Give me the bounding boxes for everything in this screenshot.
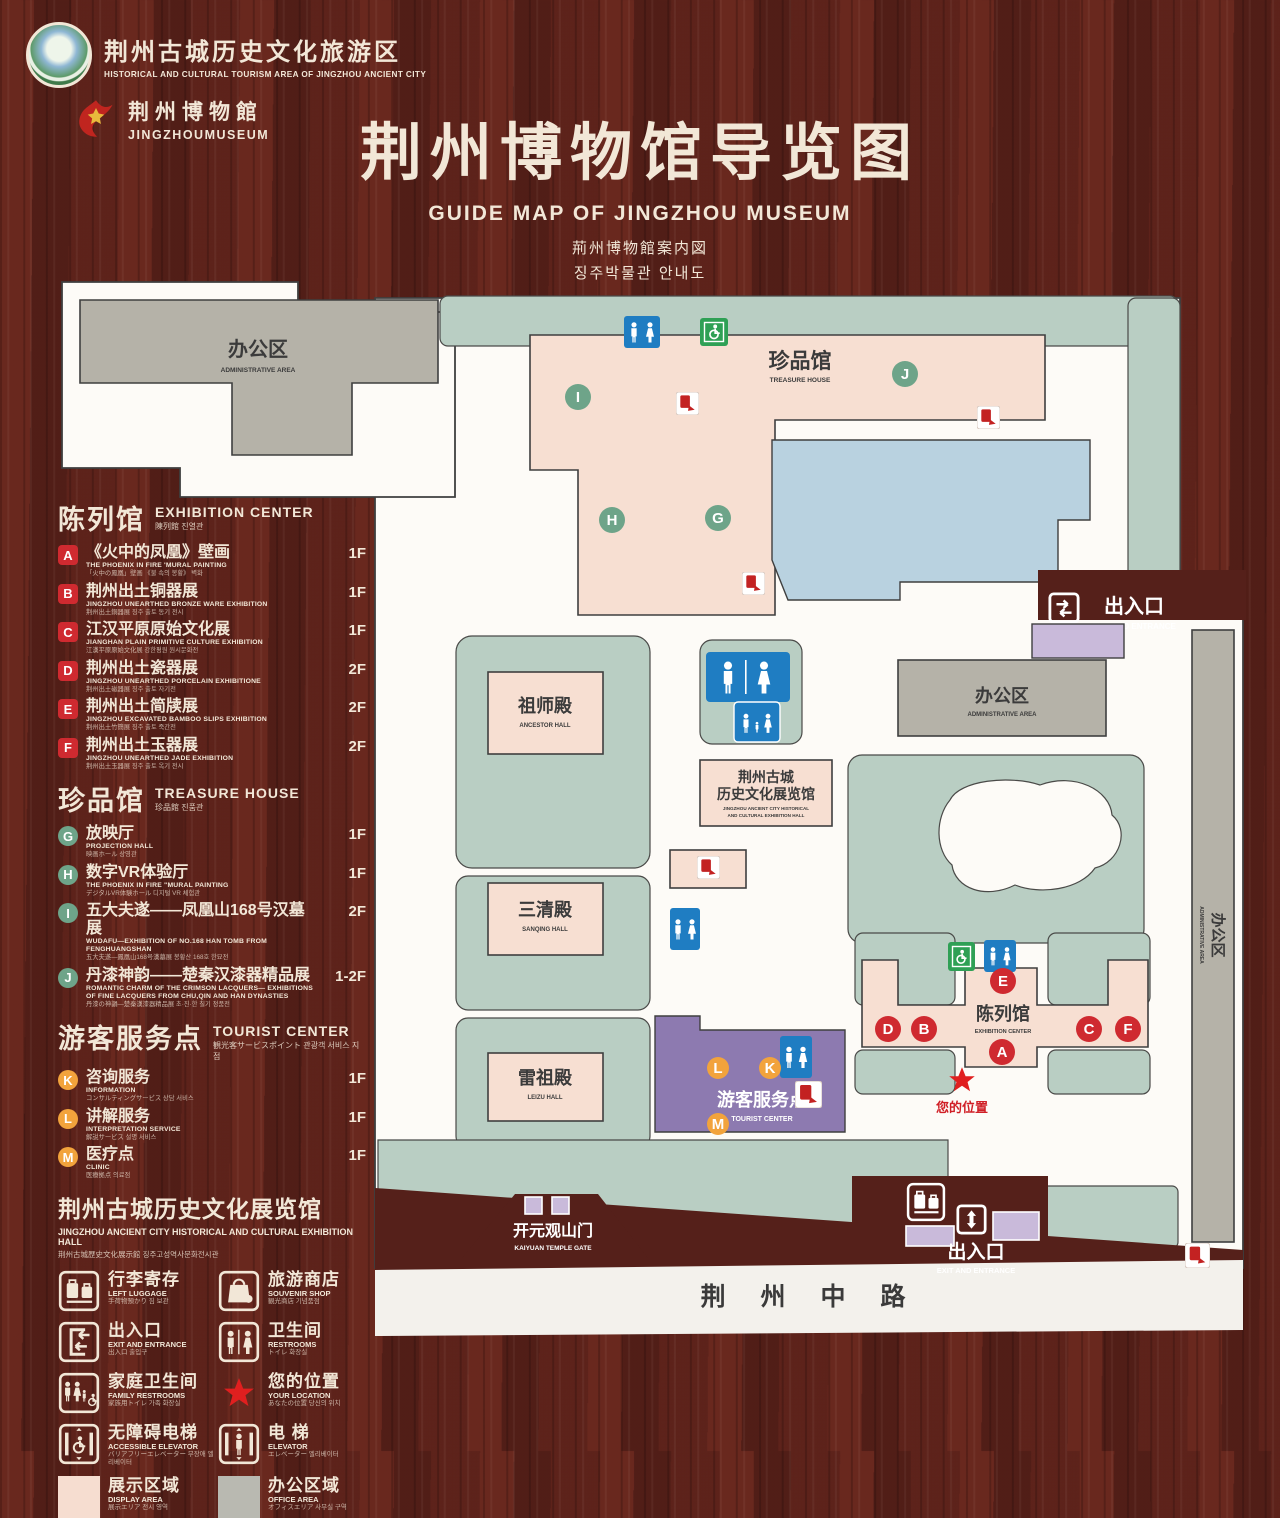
floor-label: 2F: [348, 903, 366, 920]
svg-text:JINGZHOU ANCIENT CITY HISTORIC: JINGZHOU ANCIENT CITY HISTORICAL: [723, 806, 809, 811]
admin-area-side-label: 办公区: [1209, 912, 1227, 957]
list-item: J 丹漆神韵——楚秦汉漆器精品展ROMANTIC CHARM OF THE CR…: [58, 967, 366, 1009]
floor-label: 1-2F: [335, 968, 366, 985]
svg-text:G: G: [712, 510, 724, 527]
section-treasure-house: 珍品馆 TREASURE HOUSE 珍品館 진품관 G 放映厅PROJECTI…: [58, 779, 366, 1008]
item-letter-badge: B: [58, 584, 78, 604]
legend-item-elevator: 电 梯ELEVATORエレベーター 엘리베이터: [218, 1423, 366, 1467]
elevator-icon: [218, 1423, 260, 1465]
leizu-hall: 雷祖殿 LEIZU HALL: [488, 1053, 603, 1121]
svg-text:EXHIBITION CENTER: EXHIBITION CENTER: [975, 1029, 1032, 1035]
your-location-star-icon: [218, 1372, 260, 1414]
admin-area-right-label: 办公区: [975, 685, 1029, 706]
legend-item-exit: 出入口EXIT AND ENTRANCE出入口 출입구: [58, 1321, 218, 1363]
svg-text:ADMINISTRATIVE AREA: ADMINISTRATIVE AREA: [1198, 906, 1204, 964]
svg-text:K: K: [765, 1060, 776, 1077]
list-item: E 荆州出土简牍展JINGZHOU EXCAVATED BAMBOO SLIPS…: [58, 698, 366, 732]
svg-text:游客服务点: 游客服务点: [717, 1089, 807, 1110]
lawn-exh-se: [1048, 1050, 1150, 1094]
svg-text:LEIZU HALL: LEIZU HALL: [528, 1095, 563, 1101]
svg-text:三清殿: 三清殿: [518, 900, 573, 920]
list-item: G 放映厅PROJECTION HALL映画ホール 상영관 1F: [58, 825, 366, 859]
svg-text:陈列馆: 陈列馆: [976, 1003, 1030, 1024]
svg-text:ANCESTOR HALL: ANCESTOR HALL: [519, 723, 571, 729]
section-tourist-center: 游客服务点 TOURIST CENTER 観光客サービスポイント 관광객 서비스…: [58, 1017, 366, 1180]
section-title: 珍品馆: [58, 779, 145, 818]
treasure-house-building: 珍品馆 TREASURE HOUSE: [530, 335, 1090, 615]
section-exhibition-center: 陈列馆 EXHIBITION CENTER 陳列館 진열관 A 《火中的凤凰》壁…: [58, 498, 366, 770]
svg-text:I: I: [576, 389, 580, 406]
floor-label: 1F: [348, 584, 366, 601]
svg-text:M: M: [712, 1116, 725, 1133]
lawn-right-strip: [1128, 298, 1180, 590]
souvenir-shop-icon: [218, 1270, 260, 1312]
floor-label: 1F: [348, 1147, 366, 1164]
svg-text:L: L: [713, 1060, 722, 1077]
svg-text:SANQING HALL: SANQING HALL: [522, 927, 568, 933]
svg-text:C: C: [1084, 1021, 1095, 1038]
exit-entrance-icon: [58, 1321, 100, 1363]
item-letter-badge: I: [58, 903, 78, 923]
list-item: K 咨询服务INFORMATIONコンサルティングサービス 상담 서비스 1F: [58, 1069, 366, 1103]
guide-map-poster: { "header": { "logo1": {"line1": "荆州古城历史…: [0, 0, 1280, 1451]
floor-label: 1F: [348, 826, 366, 843]
svg-text:开元观山门: 开元观山门: [513, 1221, 593, 1240]
red-marker-icon: [742, 572, 765, 595]
floor-label: 2F: [348, 699, 366, 716]
svg-text:EXIT AND ENTRANCE: EXIT AND ENTRANCE: [937, 1266, 1015, 1275]
floor-label: 2F: [348, 661, 366, 678]
restroom-icon-treasure: [624, 316, 660, 348]
red-marker-icon: [1185, 1243, 1210, 1268]
legend-sidebar: 陈列馆 EXHIBITION CENTER 陳列館 진열관 A 《火中的凤凰》壁…: [58, 498, 366, 1518]
restroom-icon-exhibition: [984, 940, 1016, 972]
accessible-elevator-icon-exhibition: [948, 942, 975, 971]
floor-label: 1F: [348, 1109, 366, 1126]
item-letter-badge: M: [58, 1147, 78, 1167]
svg-text:B: B: [919, 1021, 930, 1038]
svg-text:A: A: [997, 1044, 1008, 1061]
road-label: 荆 州 中 路: [701, 1283, 920, 1311]
item-letter-badge: K: [58, 1070, 78, 1090]
exhibition-hall-note: 荆州古城历史文化展览馆 JINGZHOU ANCIENT CITY HISTOR…: [58, 1190, 366, 1260]
legend-item-family-restrooms: 家庭卫生间FAMILY RESTROOMS家族用トイレ 가족 화장실: [58, 1372, 218, 1414]
item-letter-badge: H: [58, 865, 78, 885]
list-item: C 江汉平原原始文化展JIANGHAN PLAIN PRIMITIVE CULT…: [58, 621, 366, 655]
section-title: 游客服务点: [58, 1017, 203, 1056]
svg-text:祖师殿: 祖师殿: [517, 695, 573, 716]
svg-text:AND CULTURAL EXHIBITION HALL: AND CULTURAL EXHIBITION HALL: [728, 813, 805, 818]
red-marker-icon: [795, 1081, 822, 1108]
legend-item-restrooms: 卫生间RESTROOMSトイレ 화장실: [218, 1321, 366, 1363]
accessible-elevator-icon-treasure: [700, 318, 728, 346]
floor-label: 1F: [348, 865, 366, 882]
treasure-house-label: 珍品馆: [769, 349, 832, 373]
office-wing: 办公区 ADMINISTRATIVE AREA: [62, 282, 455, 497]
legend-grid: 行李寄存LEFT LUGGAGE手荷物預かり 짐 보관 旅游商店SOUVENIR…: [58, 1270, 366, 1518]
svg-text:荆州古城: 荆州古城: [738, 769, 794, 785]
accessible-elevator-icon: [58, 1423, 100, 1465]
floor-label: 1F: [348, 622, 366, 639]
red-marker-icon: [676, 392, 699, 415]
svg-text:TREASURE HOUSE: TREASURE HOUSE: [770, 377, 831, 384]
list-item: M 医疗点CLINIC医療拠点 의료점 1F: [58, 1146, 366, 1180]
legend-item-accessible-elevator: 无障碍电梯ACCESSIBLE ELEVATORバリアフリーエレベーター 무장애…: [58, 1423, 218, 1467]
item-letter-badge: A: [58, 545, 78, 565]
svg-text:ADMINISTRATIVE AREA: ADMINISTRATIVE AREA: [968, 712, 1038, 718]
page-title-ko: 징주박물관 안내도: [250, 262, 1030, 283]
entrance-gate-se: [993, 1212, 1039, 1240]
sanqing-hall: 三清殿 SANQING HALL: [488, 883, 603, 955]
item-letter-badge: F: [58, 738, 78, 758]
list-item: I 五大夫遂——凤凰山168号汉墓展WUDAFU—EXHIBITION OF N…: [58, 902, 366, 962]
page-title: 荆州博物馆导览图: [250, 102, 1030, 192]
floor-label: 2F: [348, 738, 366, 755]
phoenix-icon: [74, 97, 118, 141]
red-marker-icon: [697, 856, 720, 879]
family-restrooms-icon: [58, 1372, 100, 1414]
museum-name: 荆州博物館: [128, 96, 269, 126]
admin-building-right: 办公区 ADMINISTRATIVE AREA: [898, 660, 1106, 736]
entrance-gate-top: [1032, 624, 1124, 658]
left-luggage-icon: [58, 1270, 100, 1312]
restrooms-icon: [218, 1321, 260, 1363]
svg-text:TOURIST CENTER: TOURIST CENTER: [731, 1116, 792, 1123]
svg-text:F: F: [1123, 1021, 1132, 1038]
section-title: 陈列馆: [58, 498, 145, 537]
item-letter-badge: L: [58, 1109, 78, 1129]
svg-text:雷祖殿: 雷祖殿: [518, 1067, 573, 1088]
legend-item-office-area: 办公区域OFFICE AREAオフィスエリア 사무실 구역: [218, 1476, 366, 1518]
list-item: F 荆州出土玉器展JINGZHOU UNEARTHED JADE EXHIBIT…: [58, 737, 366, 771]
admin-area-top-label: 办公区: [228, 337, 288, 361]
item-letter-badge: D: [58, 661, 78, 681]
page-title-ja: 荊州博物館案内図: [250, 237, 1030, 258]
restroom-icon-sanqing: [670, 908, 700, 950]
legend-item-souvenir-shop: 旅游商店SOUVENIR SHOP観光商店 기념품점: [218, 1270, 366, 1312]
item-letter-badge: E: [58, 699, 78, 719]
red-marker-icon: [977, 406, 1000, 429]
svg-text:ADMINISTRATIVE AREA: ADMINISTRATIVE AREA: [221, 367, 296, 374]
ancestor-hall: 祖师殿 ANCESTOR HALL: [488, 672, 603, 754]
tourist-center-building: 游客服务点 TOURIST CENTER: [655, 1016, 845, 1132]
tourism-area-emblem-icon: [26, 22, 92, 88]
floor-label: 1F: [348, 1070, 366, 1087]
list-item: A 《火中的凤凰》壁画THE PHOENIX IN FIRE 'MURAL PA…: [58, 544, 366, 578]
svg-text:您的位置: 您的位置: [936, 1100, 988, 1115]
tourism-area-logo: 荆州古城历史文化旅游区 HISTORICAL AND CULTURAL TOUR…: [26, 22, 426, 88]
svg-text:J: J: [901, 366, 909, 383]
museum-logo: 荆州博物館 JINGZHOUMUSEUM: [74, 96, 269, 142]
road: 荆 州 中 路: [375, 1260, 1243, 1336]
display-area-swatch: [58, 1476, 100, 1518]
list-item: H 数字VR体验厅THE PHOENIX IN FIRE "MURAL PAIN…: [58, 864, 366, 898]
list-item: B 荆州出土铜器展JINGZHOU UNEARTHED BRONZE WARE …: [58, 583, 366, 617]
svg-text:历史文化展览馆: 历史文化展览馆: [717, 786, 815, 802]
lawn-exh-sw: [855, 1050, 955, 1094]
svg-text:D: D: [883, 1021, 894, 1038]
svg-text:KAIYUAN TEMPLE GATE: KAIYUAN TEMPLE GATE: [514, 1245, 592, 1252]
svg-text:出入口: 出入口: [1104, 595, 1164, 618]
legend-item-left-luggage: 行李寄存LEFT LUGGAGE手荷物預かり 짐 보관: [58, 1270, 218, 1312]
legend-item-display-area: 展示区域DISPLAY AREA展示エリア 전시 영역: [58, 1476, 218, 1518]
list-item: L 讲解服务INTERPRETATION SERVICE解説サービス 설명 서비…: [58, 1108, 366, 1142]
admin-strip-side: 办公区 ADMINISTRATIVE AREA: [1192, 630, 1234, 1242]
restroom-icon-tourist: [780, 1036, 812, 1078]
item-letter-badge: J: [58, 968, 78, 988]
tourism-area-name: 荆州古城历史文化旅游区: [104, 32, 426, 67]
item-letter-badge: G: [58, 826, 78, 846]
svg-text:H: H: [607, 512, 618, 529]
floor-label: 1F: [348, 545, 366, 562]
list-item: D 荆州出土瓷器展JINGZHOU UNEARTHED PORCELAIN EX…: [58, 660, 366, 694]
title-block: 荆州博物馆导览图 GUIDE MAP OF JINGZHOU MUSEUM 荊州…: [250, 102, 1030, 283]
svg-text:E: E: [998, 973, 1008, 990]
page-title-en: GUIDE MAP OF JINGZHOU MUSEUM: [250, 202, 1030, 226]
legend-item-your-location: 您的位置YOUR LOCATIONあなたの位置 당신의 위치: [218, 1372, 366, 1414]
svg-text:出入口: 出入口: [947, 1240, 1004, 1263]
item-letter-badge: C: [58, 622, 78, 642]
office-area-swatch: [218, 1476, 260, 1518]
